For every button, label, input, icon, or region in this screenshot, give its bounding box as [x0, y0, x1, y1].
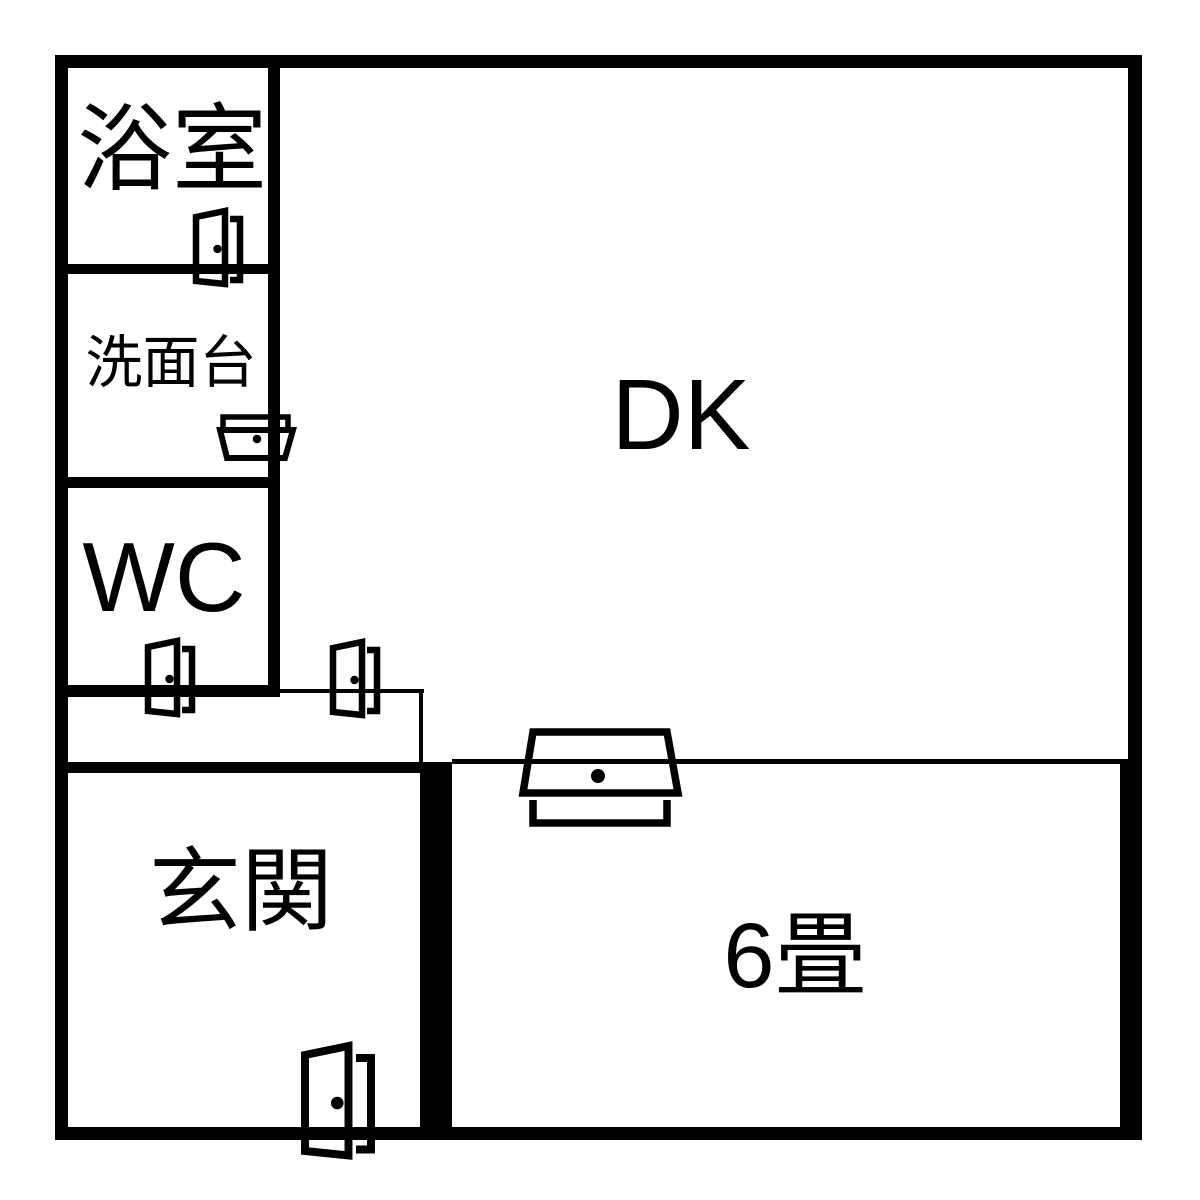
washstand-label: 洗面台	[86, 331, 257, 395]
wc-bottom-wall	[58, 685, 280, 697]
dk-room6-partition	[452, 759, 1128, 764]
bathroom-label: 浴室	[77, 97, 267, 203]
hallway-dk-partition	[274, 689, 424, 693]
room6-label: 6畳	[723, 905, 866, 1007]
outer-top-wall	[55, 55, 1142, 68]
outer-right-wall-lower	[1120, 759, 1142, 1140]
genkan-label: 玄関	[149, 841, 333, 943]
wc-label: WC	[82, 522, 245, 632]
washstand-wc-wall	[62, 477, 272, 488]
genkan-top-wall	[58, 762, 452, 773]
outer-bottom-wall	[55, 1127, 1142, 1140]
genkan-room6-wall	[420, 762, 452, 1140]
outer-right-wall-upper	[1128, 55, 1142, 765]
floor-plan-canvas: 浴室 洗面台 WC DK 玄関 6畳	[0, 0, 1200, 1200]
hallway-dk-partition-vertical	[419, 689, 423, 766]
core-vertical-wall	[268, 55, 280, 697]
floor-plan: 浴室 洗面台 WC DK 玄関 6畳	[0, 0, 1200, 1200]
dk-label: DK	[612, 359, 751, 471]
outer-left-wall	[55, 55, 68, 1140]
